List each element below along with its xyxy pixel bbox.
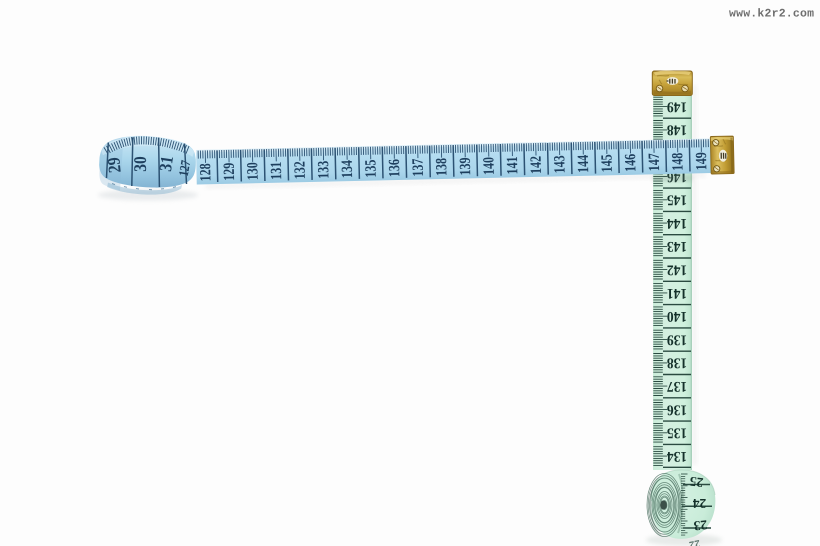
svg-text:138: 138 (432, 158, 451, 176)
svg-text:133: 133 (314, 160, 333, 178)
svg-text:138: 138 (667, 355, 688, 372)
svg-text:149: 149 (667, 99, 688, 116)
svg-text:131: 131 (267, 162, 286, 180)
svg-text:www.k2r2.com: www.k2r2.com (729, 8, 814, 21)
svg-text:135: 135 (361, 159, 380, 177)
svg-text:147: 147 (644, 153, 663, 171)
svg-text:129: 129 (219, 163, 238, 181)
svg-text:139: 139 (667, 332, 688, 349)
svg-text:148: 148 (668, 153, 687, 171)
svg-text:24: 24 (693, 496, 707, 511)
svg-text:141: 141 (667, 286, 688, 303)
svg-text:25: 25 (689, 474, 704, 491)
svg-text:143: 143 (550, 155, 569, 173)
svg-text:137: 137 (667, 379, 688, 396)
svg-text:134: 134 (337, 160, 356, 178)
svg-text:127: 127 (177, 159, 194, 177)
svg-text:30: 30 (131, 156, 151, 172)
svg-text:142: 142 (526, 156, 545, 174)
svg-text:139: 139 (456, 157, 475, 175)
svg-text:130: 130 (243, 162, 262, 180)
svg-text:135: 135 (667, 425, 688, 442)
svg-text:145: 145 (597, 154, 616, 172)
svg-text:137: 137 (408, 158, 427, 176)
svg-text:136: 136 (667, 402, 688, 419)
svg-text:144: 144 (667, 216, 688, 233)
svg-text:134: 134 (667, 449, 688, 466)
svg-text:143: 143 (667, 239, 688, 256)
svg-text:132: 132 (290, 161, 309, 179)
svg-text:141: 141 (503, 156, 522, 174)
svg-text:146: 146 (621, 154, 640, 172)
svg-text:140: 140 (479, 157, 498, 175)
svg-text:148: 148 (667, 122, 688, 139)
svg-text:128: 128 (196, 163, 215, 181)
svg-text:140: 140 (667, 309, 688, 326)
svg-text:145: 145 (667, 192, 688, 209)
svg-text:136: 136 (385, 159, 404, 177)
svg-text:31: 31 (156, 155, 178, 173)
svg-text:144: 144 (574, 155, 593, 173)
svg-text:29: 29 (104, 156, 125, 174)
svg-text:142: 142 (667, 262, 688, 279)
svg-text:149: 149 (692, 152, 711, 170)
svg-text:23: 23 (693, 517, 708, 533)
